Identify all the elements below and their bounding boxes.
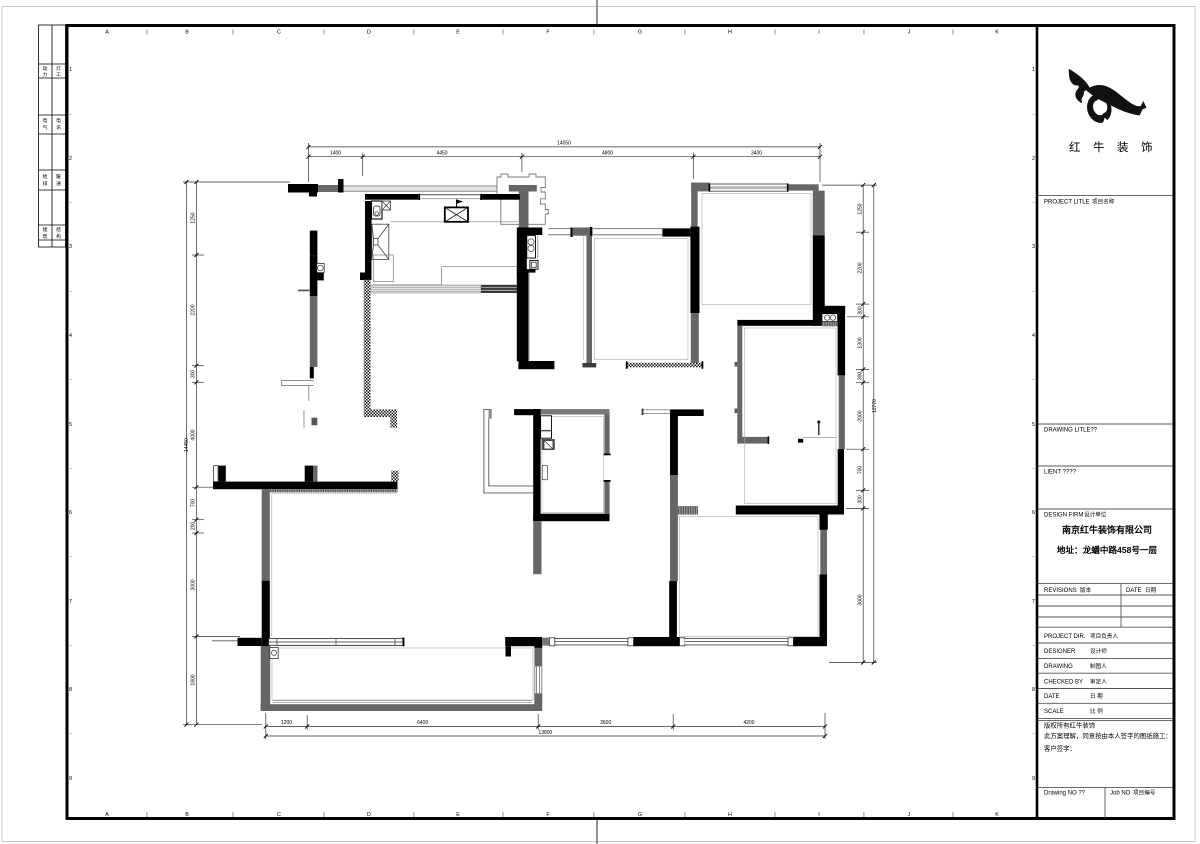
- svg-text:1300: 1300: [857, 337, 863, 348]
- svg-text:4: 4: [1032, 333, 1035, 339]
- svg-text:1: 1: [69, 67, 72, 73]
- svg-text:3: 3: [1032, 244, 1035, 250]
- svg-text:H: H: [728, 812, 732, 818]
- svg-text:此方案理解，同意按由本人签字的图纸施工：: 此方案理解，同意按由本人签字的图纸施工：: [1044, 731, 1172, 740]
- svg-text:2200: 2200: [191, 304, 197, 315]
- svg-text:12770: 12770: [872, 399, 878, 413]
- svg-text:DESIGNER: DESIGNER: [1044, 649, 1076, 655]
- svg-text:|: |: [684, 812, 685, 818]
- svg-text:LIENT ????: LIENT ????: [1044, 470, 1077, 476]
- svg-text:版本: 版本: [1080, 586, 1092, 594]
- svg-text:讯: 讯: [56, 124, 61, 131]
- svg-text:I: I: [818, 30, 820, 36]
- svg-text:项目负责人: 项目负责人: [1090, 632, 1118, 640]
- svg-text:7: 7: [69, 599, 72, 605]
- svg-text:3000: 3000: [191, 579, 197, 590]
- svg-text:工: 工: [56, 72, 61, 78]
- svg-text:|: |: [232, 30, 233, 36]
- svg-text:|: |: [413, 812, 414, 818]
- svg-text:6: 6: [69, 510, 72, 516]
- svg-text:700: 700: [857, 466, 863, 475]
- svg-text:红牛装饰: 红牛装饰: [1069, 140, 1165, 154]
- svg-text:电: 电: [56, 117, 61, 124]
- svg-text:|: |: [952, 812, 953, 818]
- svg-text:1250: 1250: [857, 203, 863, 214]
- svg-text:5: 5: [69, 422, 72, 428]
- svg-text:筑: 筑: [43, 233, 48, 240]
- svg-text:力: 力: [43, 71, 48, 78]
- svg-text:Job NO: Job NO: [1110, 790, 1131, 796]
- svg-text:|: |: [502, 30, 503, 36]
- svg-text:C: C: [277, 30, 281, 36]
- svg-text:Drawing NO ??: Drawing NO ??: [1044, 790, 1086, 796]
- svg-text:比 例: 比 例: [1090, 707, 1103, 715]
- svg-text:|: |: [863, 30, 864, 36]
- svg-text:|: |: [684, 30, 685, 36]
- svg-text:6400: 6400: [417, 720, 428, 726]
- svg-text:300: 300: [857, 495, 863, 504]
- svg-text:南京红牛装饰有限公司: 南京红牛装饰有限公司: [1062, 524, 1152, 535]
- svg-text:通: 通: [56, 180, 61, 187]
- svg-text:构: 构: [56, 233, 61, 240]
- svg-text:H: H: [728, 30, 732, 36]
- svg-text:气: 气: [43, 124, 48, 131]
- svg-text:2: 2: [69, 156, 72, 162]
- svg-text:日 期: 日 期: [1090, 693, 1103, 700]
- svg-text:项目编号: 项目编号: [1133, 788, 1156, 796]
- svg-text:版权所有红牛装饰: 版权所有红牛装饰: [1044, 721, 1096, 730]
- svg-text:-: -: [1033, 554, 1035, 560]
- svg-text:SCALE: SCALE: [1044, 709, 1064, 715]
- svg-text:6: 6: [1032, 510, 1035, 516]
- svg-text:项目名称: 项目名称: [1092, 198, 1115, 206]
- svg-text:7: 7: [1032, 599, 1035, 605]
- svg-text:暖: 暖: [56, 173, 61, 180]
- svg-text:设计师: 设计师: [1090, 647, 1107, 655]
- svg-text:E: E: [456, 812, 460, 818]
- svg-text:4000: 4000: [191, 429, 197, 440]
- svg-text:DESIGN FIRM: DESIGN FIRM: [1044, 513, 1083, 519]
- svg-text:|: |: [952, 30, 953, 36]
- svg-text:-: -: [1033, 643, 1035, 649]
- svg-text:4450: 4450: [436, 151, 447, 157]
- svg-text:2000: 2000: [857, 410, 863, 421]
- svg-text:-: -: [70, 377, 72, 383]
- svg-text:A: A: [105, 30, 109, 36]
- svg-text:灯: 灯: [56, 65, 61, 72]
- svg-text:-: -: [70, 643, 72, 649]
- svg-text:4: 4: [69, 333, 72, 339]
- svg-text:|: |: [863, 812, 864, 818]
- svg-text:-: -: [1033, 731, 1035, 737]
- svg-text:1800: 1800: [191, 674, 197, 685]
- svg-text:-: -: [1033, 200, 1035, 206]
- svg-text:1250: 1250: [191, 212, 197, 223]
- svg-text:-: -: [1033, 377, 1035, 383]
- svg-text:1: 1: [1032, 67, 1035, 73]
- svg-text:300: 300: [857, 306, 863, 315]
- svg-text:300: 300: [857, 372, 863, 381]
- svg-text:-: -: [70, 200, 72, 206]
- svg-text:3000: 3000: [857, 594, 863, 605]
- svg-text:J: J: [908, 30, 911, 36]
- svg-text:13800: 13800: [538, 730, 552, 736]
- svg-text:300: 300: [191, 370, 197, 379]
- svg-text:B: B: [185, 812, 189, 818]
- svg-text:2: 2: [1032, 156, 1035, 162]
- svg-text:PROJECT LITLE: PROJECT LITLE: [1044, 200, 1090, 206]
- svg-text:地址：龙蟠中路458号一层: 地址：龙蟠中路458号一层: [1057, 544, 1158, 555]
- svg-text:DATE: DATE: [1044, 694, 1060, 700]
- svg-text:G: G: [638, 30, 642, 36]
- svg-text:1200: 1200: [281, 720, 292, 726]
- svg-text:K: K: [995, 30, 999, 36]
- svg-text:|: |: [593, 30, 594, 36]
- svg-text:8: 8: [69, 687, 72, 693]
- svg-text:|: |: [232, 812, 233, 818]
- svg-text:14450: 14450: [184, 438, 190, 452]
- svg-text:建: 建: [43, 226, 48, 233]
- svg-text:D: D: [367, 812, 371, 818]
- svg-text:8: 8: [1032, 687, 1035, 693]
- svg-text:-: -: [1033, 112, 1035, 118]
- svg-text:4200: 4200: [743, 720, 754, 726]
- svg-text:-: -: [70, 289, 72, 295]
- svg-text:I: I: [818, 812, 820, 818]
- svg-text:3400: 3400: [751, 151, 762, 157]
- svg-text:-: -: [1033, 289, 1035, 295]
- svg-text:|: |: [413, 30, 414, 36]
- svg-text:E: E: [456, 30, 460, 36]
- svg-text:|: |: [593, 812, 594, 818]
- svg-text:审定人: 审定人: [1090, 677, 1107, 685]
- svg-text:5: 5: [1032, 422, 1035, 428]
- svg-text:B: B: [185, 30, 189, 36]
- svg-text:|: |: [146, 812, 147, 818]
- svg-text:200: 200: [191, 522, 197, 531]
- svg-text:DATE: DATE: [1126, 588, 1142, 594]
- svg-text:给: 给: [43, 173, 48, 180]
- svg-text:1400: 1400: [330, 151, 341, 157]
- svg-text:日期: 日期: [1145, 587, 1157, 594]
- svg-text:2200: 2200: [857, 262, 863, 273]
- svg-text:9: 9: [69, 776, 72, 782]
- svg-text:3: 3: [69, 244, 72, 250]
- svg-text:|: |: [774, 812, 775, 818]
- svg-text:G: G: [638, 812, 642, 818]
- svg-text:9: 9: [1032, 776, 1035, 782]
- svg-text:DRAWING LITLE??: DRAWING LITLE??: [1044, 428, 1098, 434]
- svg-text:DRAWING: DRAWING: [1044, 664, 1073, 670]
- svg-text:设计单位: 设计单位: [1084, 511, 1107, 519]
- svg-text:|: |: [323, 812, 324, 818]
- svg-text:K: K: [995, 812, 999, 818]
- svg-text:电: 电: [43, 117, 48, 124]
- svg-text:-: -: [70, 112, 72, 118]
- svg-text:-: -: [70, 466, 72, 472]
- svg-text:REVISIONS: REVISIONS: [1044, 588, 1077, 594]
- svg-text:-: -: [70, 731, 72, 737]
- svg-text:|: |: [146, 30, 147, 36]
- svg-text:PROJECT DIR.: PROJECT DIR.: [1044, 634, 1086, 640]
- svg-text:14050: 14050: [557, 141, 571, 147]
- svg-text:结: 结: [56, 226, 61, 233]
- svg-text:客户签字：: 客户签字：: [1044, 744, 1076, 753]
- svg-text:4800: 4800: [602, 151, 613, 157]
- svg-text:|: |: [774, 30, 775, 36]
- svg-text:|: |: [502, 812, 503, 818]
- svg-text:动: 动: [43, 65, 48, 72]
- svg-text:700: 700: [191, 499, 197, 508]
- svg-text:制图人: 制图人: [1090, 662, 1107, 670]
- svg-text:J: J: [908, 812, 911, 818]
- svg-text:F: F: [546, 30, 550, 36]
- svg-text:-: -: [70, 554, 72, 560]
- svg-text:CHECKED BY: CHECKED BY: [1044, 679, 1083, 685]
- svg-text:|: |: [323, 30, 324, 36]
- svg-text:C: C: [277, 812, 281, 818]
- svg-text:排: 排: [43, 180, 48, 187]
- svg-text:-: -: [1033, 466, 1035, 472]
- svg-text:A: A: [105, 812, 109, 818]
- svg-text:3600: 3600: [600, 720, 611, 726]
- svg-text:D: D: [367, 30, 371, 36]
